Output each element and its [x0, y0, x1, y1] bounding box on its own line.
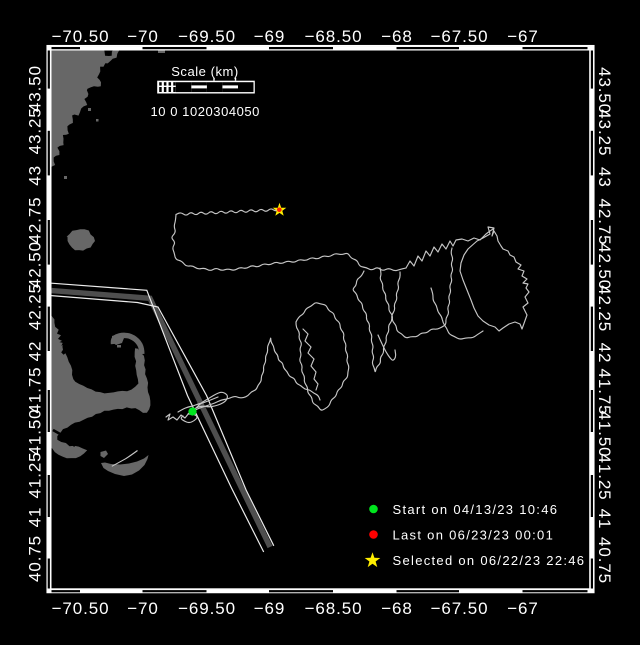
svg-text:42.25: 42.25: [26, 283, 45, 330]
svg-text:41.50: 41.50: [26, 408, 45, 455]
svg-text:43.25: 43.25: [26, 107, 45, 154]
svg-text:Scale (km): Scale (km): [171, 64, 239, 79]
svg-text:Last on 06/23/23 00:01: Last on 06/23/23 00:01: [393, 527, 555, 542]
svg-text:41.75: 41.75: [595, 368, 614, 415]
svg-text:10 0 1020304050: 10 0 1020304050: [151, 104, 260, 119]
svg-text:43: 43: [595, 167, 614, 188]
svg-text:42.50: 42.50: [26, 241, 45, 288]
svg-text:−68.50: −68.50: [305, 599, 363, 618]
svg-text:42: 42: [26, 341, 45, 362]
svg-text:43.50: 43.50: [26, 65, 45, 112]
svg-text:43.50: 43.50: [595, 67, 614, 114]
svg-text:42: 42: [595, 343, 614, 364]
svg-text:−67.50: −67.50: [431, 27, 489, 46]
svg-text:−68: −68: [381, 599, 413, 618]
svg-text:Start on 04/13/23 10:46: Start on 04/13/23 10:46: [393, 502, 559, 517]
svg-text:42.25: 42.25: [595, 285, 614, 332]
svg-text:41.25: 41.25: [26, 451, 45, 498]
svg-text:−68.50: −68.50: [305, 27, 363, 46]
svg-text:42.50: 42.50: [595, 243, 614, 290]
svg-text:42.75: 42.75: [595, 198, 614, 245]
svg-text:−70.50: −70.50: [52, 27, 110, 46]
svg-text:−68: −68: [381, 27, 413, 46]
svg-text:43.25: 43.25: [595, 109, 614, 156]
svg-text:−70.50: −70.50: [52, 599, 110, 618]
svg-text:−70: −70: [127, 599, 159, 618]
svg-text:41.75: 41.75: [26, 366, 45, 413]
svg-text:−69: −69: [254, 27, 286, 46]
svg-text:Selected on 06/22/23 22:46: Selected on 06/22/23 22:46: [393, 553, 586, 568]
svg-text:43: 43: [26, 165, 45, 186]
svg-text:41: 41: [595, 509, 614, 530]
svg-text:41.25: 41.25: [595, 453, 614, 500]
svg-text:−67: −67: [507, 27, 539, 46]
svg-text:−67: −67: [507, 599, 539, 618]
svg-text:42.75: 42.75: [26, 196, 45, 243]
svg-text:−70: −70: [127, 27, 159, 46]
svg-text:−67.50: −67.50: [431, 599, 489, 618]
svg-text:41.50: 41.50: [595, 410, 614, 457]
svg-text:40.75: 40.75: [26, 535, 45, 582]
svg-text:−69: −69: [254, 599, 286, 618]
svg-text:41: 41: [26, 507, 45, 528]
svg-text:40.75: 40.75: [595, 537, 614, 584]
svg-text:−69.50: −69.50: [178, 599, 236, 618]
svg-text:−69.50: −69.50: [178, 27, 236, 46]
